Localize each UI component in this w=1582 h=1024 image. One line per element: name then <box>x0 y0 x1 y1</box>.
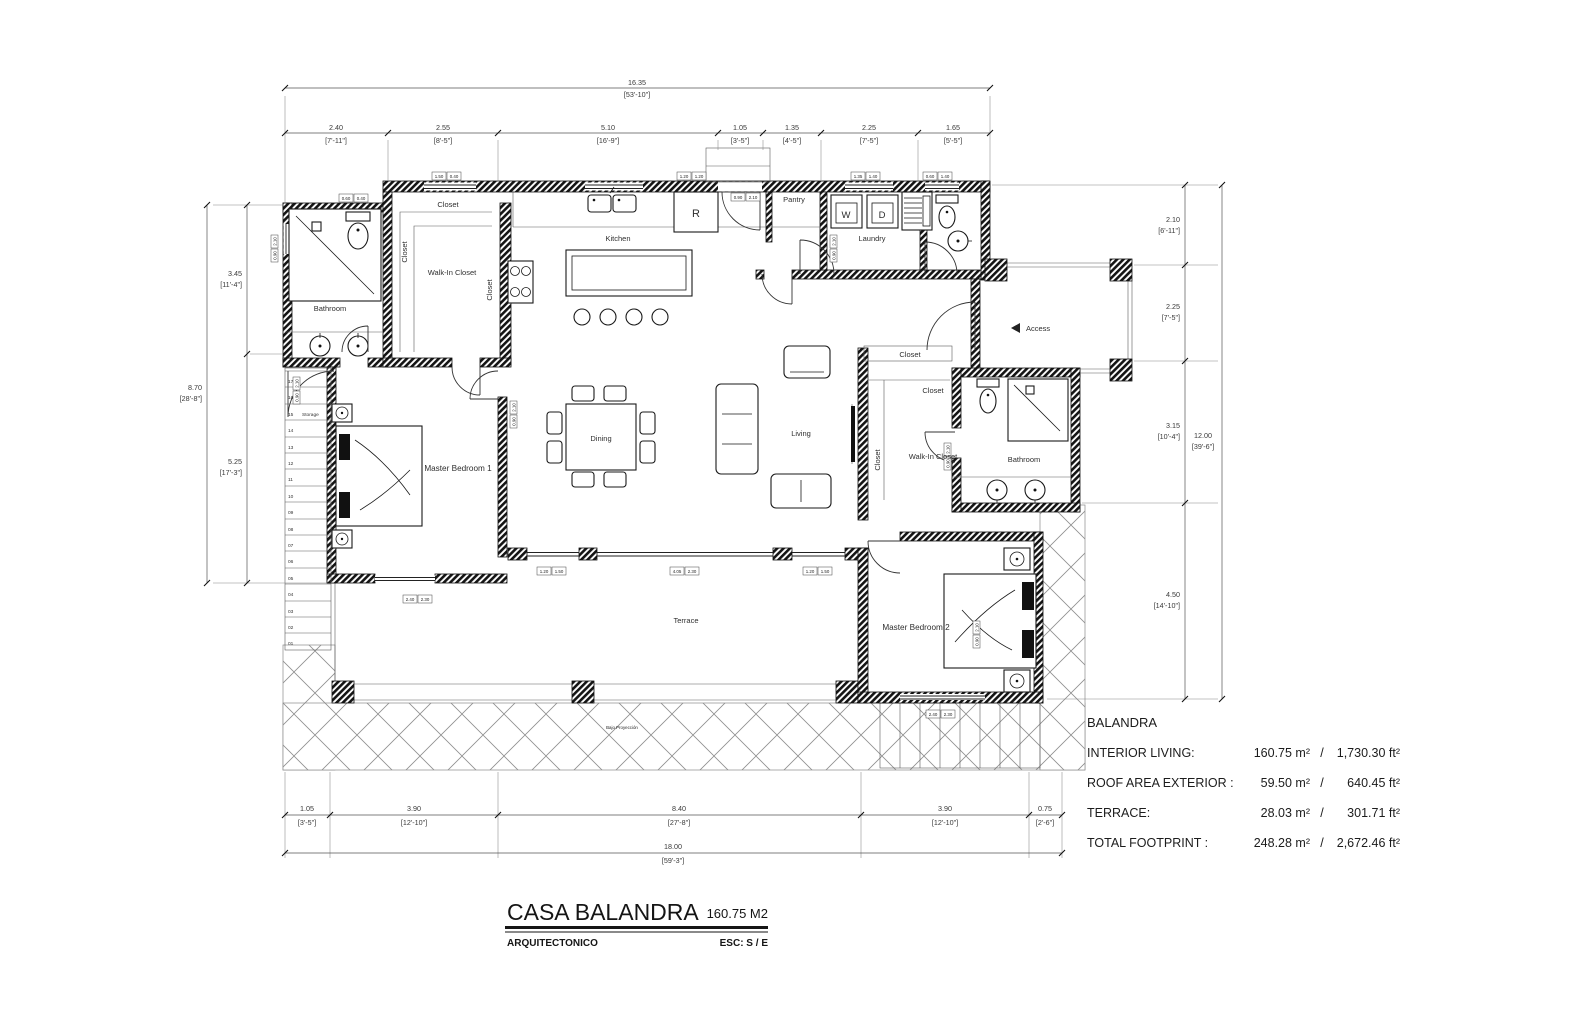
svg-text:1.20: 1.20 <box>680 174 689 179</box>
stair-number: 10 <box>288 494 294 500</box>
title-rule <box>505 926 768 929</box>
kitchen-island <box>566 250 692 325</box>
summary-ft2: 640.45 ft² <box>1347 776 1400 790</box>
stair-number: 05 <box>288 576 294 582</box>
svg-text:[27'-8"]: [27'-8"] <box>668 818 690 827</box>
summary-m2: 248.28 m² <box>1254 836 1310 850</box>
closet-mid-label: Closet <box>485 278 494 300</box>
summary-sep: / <box>1320 806 1324 820</box>
bed-2 <box>944 548 1036 692</box>
svg-text:2.30: 2.30 <box>421 597 430 602</box>
stair-number: 15 <box>288 412 294 418</box>
summary-label: TOTAL FOOTPRINT : <box>1087 836 1208 850</box>
stair-number: 12 <box>288 461 294 467</box>
svg-text:1.35: 1.35 <box>785 123 799 132</box>
sheet-scale: ESC: S / E <box>720 938 769 949</box>
svg-text:2.40: 2.40 <box>329 123 343 132</box>
svg-text:2.10: 2.10 <box>1166 215 1180 224</box>
svg-text:1.05: 1.05 <box>300 804 314 813</box>
stair-number: 09 <box>288 510 294 516</box>
svg-text:2.10: 2.10 <box>749 195 758 200</box>
svg-text:[12'-10"]: [12'-10"] <box>932 818 958 827</box>
svg-text:0.60: 0.60 <box>926 174 935 179</box>
summary-ft2: 1,730.30 ft² <box>1337 746 1400 760</box>
svg-text:2.10: 2.10 <box>273 237 278 246</box>
svg-text:0.90: 0.90 <box>512 417 517 426</box>
summary-m2: 28.03 m² <box>1261 806 1310 820</box>
stairs: 17 16 15 Storage 14 13 12 11 10 09 08 07… <box>285 368 331 650</box>
svg-text:2.10: 2.10 <box>295 379 300 388</box>
svg-text:[3'-5"]: [3'-5"] <box>731 136 749 145</box>
stove <box>508 261 533 303</box>
svg-text:[7'-5"]: [7'-5"] <box>860 136 878 145</box>
bathroom2-label: Bathroom <box>1008 455 1041 464</box>
dryer-label: D <box>879 210 886 221</box>
utility-sink <box>902 192 932 230</box>
stair-number: 03 <box>288 609 294 615</box>
summary-sep: / <box>1320 836 1324 850</box>
svg-text:2.40: 2.40 <box>406 597 415 602</box>
svg-text:[10'-4"]: [10'-4"] <box>1158 432 1180 441</box>
svg-text:1.40: 1.40 <box>941 174 950 179</box>
svg-text:0.60: 0.60 <box>342 196 351 201</box>
svg-text:[8'-5"]: [8'-5"] <box>434 136 452 145</box>
svg-text:[12'-10"]: [12'-10"] <box>401 818 427 827</box>
kitchen-label: Kitchen <box>605 234 630 243</box>
project-title: CASA BALANDRA <box>507 899 699 925</box>
svg-text:1.50: 1.50 <box>555 569 564 574</box>
stool <box>600 309 616 325</box>
svg-text:2.55: 2.55 <box>436 123 450 132</box>
svg-text:3.90: 3.90 <box>938 804 952 813</box>
porch-column <box>1110 359 1132 381</box>
porch-column <box>985 259 1007 281</box>
closet-c-label: Closet <box>873 448 882 470</box>
stool <box>574 309 590 325</box>
shower-2 <box>1008 379 1068 441</box>
svg-text:2.10: 2.10 <box>832 237 837 246</box>
laundry-label: Laundry <box>858 234 885 243</box>
refrigerator-label: R <box>692 208 700 220</box>
refrigerator: R <box>674 192 718 232</box>
svg-text:0.75: 0.75 <box>1038 804 1052 813</box>
area-summary: BALANDRA INTERIOR LIVING: 160.75 m² / 1,… <box>1087 715 1400 850</box>
svg-text:[16'-9"]: [16'-9"] <box>597 136 619 145</box>
storage-label: Storage <box>302 412 319 418</box>
svg-text:[2'-6"]: [2'-6"] <box>1036 818 1054 827</box>
svg-text:3.15: 3.15 <box>1166 421 1180 430</box>
summary-label: ROOF AREA EXTERIOR : <box>1087 776 1234 790</box>
svg-text:[59'-3"]: [59'-3"] <box>662 856 684 865</box>
svg-text:[4'-5"]: [4'-5"] <box>783 136 801 145</box>
svg-text:[14'-10"]: [14'-10"] <box>1154 601 1180 610</box>
terrace-column <box>332 681 354 703</box>
stair-number: 11 <box>288 477 293 483</box>
summary-ft2: 301.71 ft² <box>1347 806 1400 820</box>
svg-text:18.00: 18.00 <box>664 842 682 851</box>
svg-text:4.50: 4.50 <box>1166 590 1180 599</box>
svg-text:[5'-5"]: [5'-5"] <box>944 136 962 145</box>
pantry-label: Pantry <box>783 195 805 204</box>
toilet-2 <box>936 195 958 228</box>
summary-heading: BALANDRA <box>1087 715 1157 730</box>
svg-text:0.90: 0.90 <box>273 251 278 260</box>
svg-text:8.70: 8.70 <box>188 383 202 392</box>
summary-m2: 59.50 m² <box>1261 776 1310 790</box>
svg-text:0.90: 0.90 <box>734 195 743 200</box>
sheet-name: ARQUITECTONICO <box>507 938 598 949</box>
toilet-1 <box>346 212 370 249</box>
svg-text:2.25: 2.25 <box>1166 302 1180 311</box>
svg-text:0.90: 0.90 <box>832 251 837 260</box>
under-projection-label: Bajo Proyección <box>606 725 638 730</box>
living-set <box>716 346 831 508</box>
svg-text:0.90: 0.90 <box>295 393 300 402</box>
svg-text:0.90: 0.90 <box>975 637 980 646</box>
svg-text:2.10: 2.10 <box>975 623 980 632</box>
toilet-3 <box>977 379 999 413</box>
svg-text:1.65: 1.65 <box>946 123 960 132</box>
dryer: D <box>867 195 898 228</box>
svg-text:[17'-3"]: [17'-3"] <box>220 468 242 477</box>
svg-text:12.00: 12.00 <box>1194 431 1212 440</box>
master1-label: Master Bedroom 1 <box>424 464 492 473</box>
svg-text:5.25: 5.25 <box>228 457 242 466</box>
svg-text:1.40: 1.40 <box>869 174 878 179</box>
svg-text:0.40: 0.40 <box>450 174 459 179</box>
floor-plan-sheet: Bajo Proyección Terrace <box>0 0 1582 1024</box>
dining-label: Dining <box>590 434 611 443</box>
stair-number: 06 <box>288 559 294 565</box>
svg-text:[53'-10"]: [53'-10"] <box>624 90 650 99</box>
entry-stoop <box>706 148 770 182</box>
svg-text:[11'-4"]: [11'-4"] <box>220 280 242 289</box>
svg-text:0.40: 0.40 <box>357 196 366 201</box>
bed-1 <box>332 404 422 548</box>
access-label: Access <box>1026 324 1050 333</box>
svg-text:1.20: 1.20 <box>695 174 704 179</box>
terrace-column <box>836 681 858 703</box>
svg-text:3.45: 3.45 <box>228 269 242 278</box>
stair-number: 02 <box>288 625 294 631</box>
bathroom1-label: Bathroom <box>314 304 347 313</box>
summary-label: INTERIOR LIVING: <box>1087 746 1195 760</box>
stair-number: 14 <box>288 428 294 434</box>
svg-text:1.05: 1.05 <box>733 123 747 132</box>
summary-m2: 160.75 m² <box>1254 746 1310 760</box>
svg-text:2.25: 2.25 <box>862 123 876 132</box>
svg-text:2.10: 2.10 <box>512 403 517 412</box>
floor-plan-drawing: Bajo Proyección Terrace <box>0 0 1582 1024</box>
closet-a-label: Closet <box>899 350 921 359</box>
svg-text:[39'-6"]: [39'-6"] <box>1192 442 1214 451</box>
svg-text:16.35: 16.35 <box>628 78 646 87</box>
living-label: Living <box>791 429 811 438</box>
title-block: CASA BALANDRA 160.75 M2 ARQUITECTONICO E… <box>505 899 768 949</box>
svg-text:2.30: 2.30 <box>944 712 953 717</box>
svg-text:1.50: 1.50 <box>821 569 830 574</box>
access-porch: Access <box>985 259 1132 381</box>
terrace-column <box>572 681 594 703</box>
svg-text:8.40: 8.40 <box>672 804 686 813</box>
svg-text:4.05: 4.05 <box>673 569 682 574</box>
bath1-sinks <box>310 333 368 356</box>
svg-text:[7'-11"]: [7'-11"] <box>325 136 347 145</box>
svg-text:1.35: 1.35 <box>854 174 863 179</box>
stair-number: 01 <box>288 641 294 647</box>
svg-text:2.40: 2.40 <box>929 712 938 717</box>
terrace-label: Terrace <box>673 616 698 625</box>
svg-text:[28'-8"]: [28'-8"] <box>180 394 202 403</box>
master2-label: Master Bedroom 2 <box>882 623 950 632</box>
stair-number: 08 <box>288 527 294 533</box>
svg-text:3.90: 3.90 <box>407 804 421 813</box>
washer-label: W <box>842 210 851 221</box>
washer: W <box>831 195 862 228</box>
closet-top-label: Closet <box>437 200 459 209</box>
walkin2-label: Walk-In Closet <box>909 452 958 461</box>
svg-text:[6'-11"]: [6'-11"] <box>1158 226 1180 235</box>
bath2-sinks <box>987 480 1045 504</box>
stool <box>626 309 642 325</box>
closet-left-label: Closet <box>400 240 409 262</box>
svg-text:1.50: 1.50 <box>435 174 444 179</box>
porch-column <box>1110 259 1132 281</box>
walkin1-label: Walk-In Closet <box>428 268 477 277</box>
halfbath-sink <box>948 231 972 251</box>
shower-1 <box>289 209 381 301</box>
summary-label: TERRACE: <box>1087 806 1150 820</box>
summary-ft2: 2,672.46 ft² <box>1337 836 1400 850</box>
svg-text:1.20: 1.20 <box>806 569 815 574</box>
svg-text:5.10: 5.10 <box>601 123 615 132</box>
project-area: 160.75 M2 <box>707 906 768 921</box>
svg-text:[3'-5"]: [3'-5"] <box>298 818 316 827</box>
stool <box>652 309 668 325</box>
stair-number: 13 <box>288 445 294 451</box>
access-arrow-icon <box>1011 323 1020 333</box>
svg-text:1.20: 1.20 <box>540 569 549 574</box>
summary-sep: / <box>1320 776 1324 790</box>
summary-sep: / <box>1320 746 1324 760</box>
stair-number: 04 <box>288 592 294 598</box>
svg-text:[7'-5"]: [7'-5"] <box>1162 313 1180 322</box>
svg-text:2.30: 2.30 <box>688 569 697 574</box>
closet-b-label: Closet <box>922 386 944 395</box>
stair-number: 07 <box>288 543 294 549</box>
